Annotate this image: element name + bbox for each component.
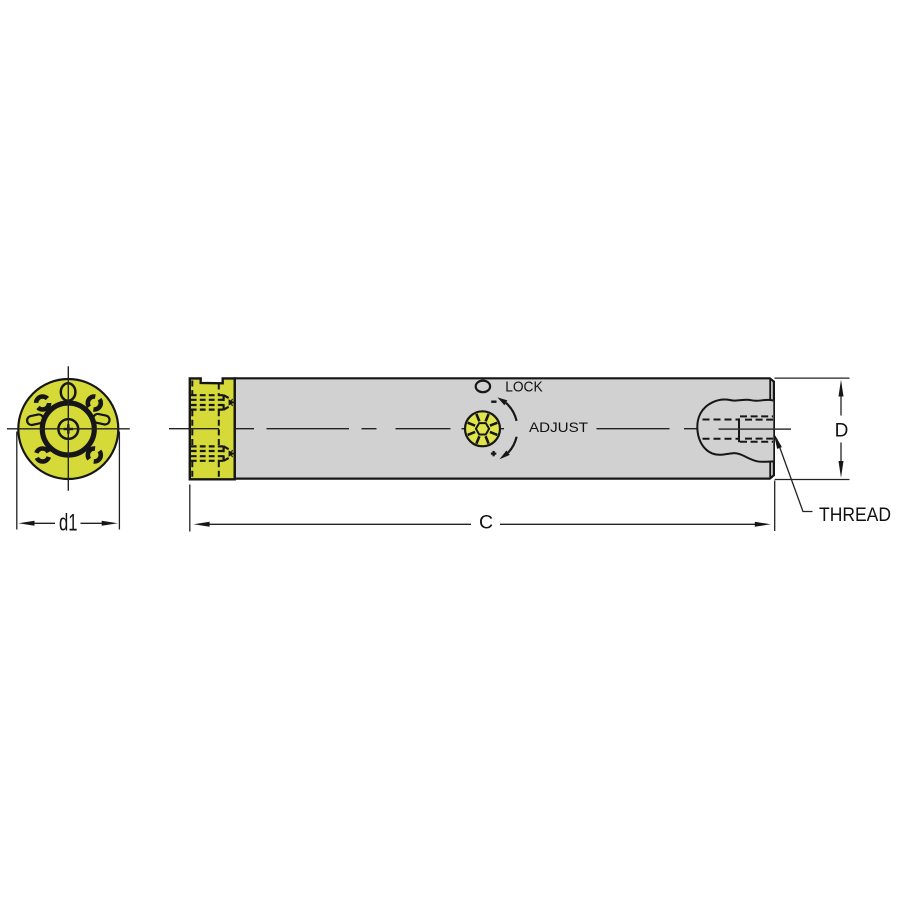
svg-text:D: D [835, 420, 849, 441]
svg-text:ADJUST: ADJUST [529, 420, 588, 435]
svg-text:d1: d1 [59, 510, 78, 537]
svg-text:THREAD: THREAD [819, 505, 891, 526]
svg-text:C: C [479, 512, 493, 534]
svg-text:LOCK: LOCK [505, 378, 543, 395]
